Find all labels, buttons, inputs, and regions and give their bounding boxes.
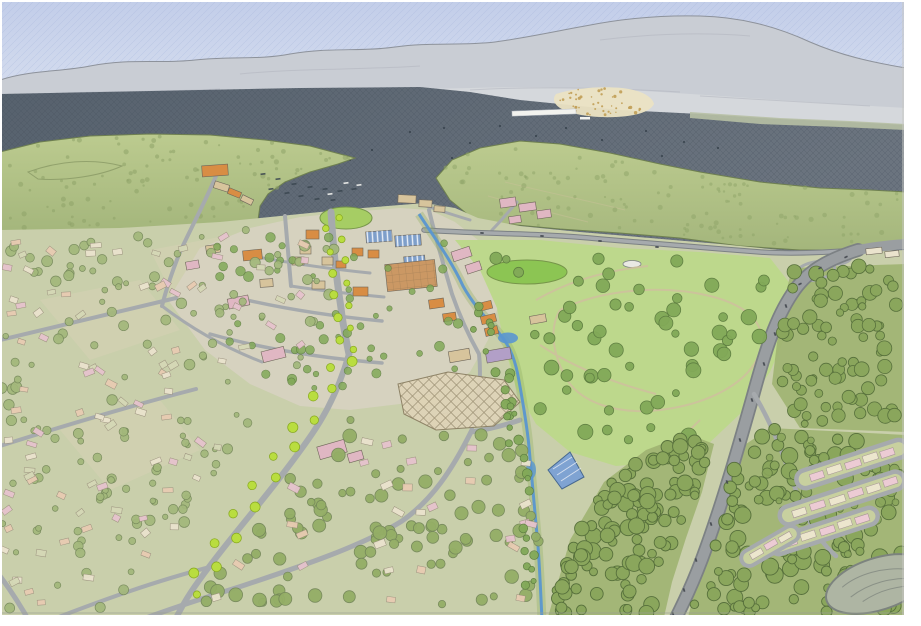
tree — [339, 489, 346, 496]
tree — [624, 436, 632, 444]
street-tree — [338, 236, 345, 243]
tree — [265, 266, 274, 275]
scrub-dot — [211, 206, 216, 211]
street-tree — [330, 291, 338, 299]
distant-building — [591, 96, 593, 98]
scrub-dot — [669, 185, 673, 189]
house — [164, 388, 173, 394]
house — [86, 250, 96, 256]
tree — [128, 569, 134, 575]
tree — [76, 548, 86, 558]
tree — [122, 485, 129, 492]
tree — [303, 365, 311, 373]
scrub-dot — [723, 183, 726, 186]
tree — [266, 233, 276, 243]
scrub-dot — [185, 176, 189, 180]
tree — [485, 453, 494, 462]
tree — [243, 554, 253, 564]
tree — [78, 438, 84, 444]
tree — [705, 278, 719, 292]
distant-building — [586, 112, 589, 115]
forest-tree — [832, 434, 842, 444]
tree — [279, 592, 292, 605]
tree — [411, 541, 422, 552]
distant-building — [601, 105, 603, 107]
building — [509, 215, 522, 224]
tree — [686, 363, 701, 378]
scrub-dot — [466, 152, 470, 156]
forest-tree — [628, 490, 640, 502]
scrub-dot — [747, 215, 752, 220]
forest-tree — [828, 337, 836, 345]
tree — [230, 246, 237, 253]
tree — [107, 395, 118, 406]
tree — [235, 321, 241, 327]
building — [537, 209, 552, 219]
tree — [64, 271, 74, 281]
forest-tree — [815, 549, 831, 565]
tree — [214, 243, 221, 250]
scrub-dot — [519, 171, 524, 176]
forest-tree — [821, 402, 831, 412]
distant-building — [600, 93, 602, 95]
tree — [460, 533, 471, 544]
scrub-dot — [281, 149, 286, 154]
scrub-dot — [140, 179, 145, 184]
tree — [6, 415, 16, 425]
scrub-dot — [595, 175, 600, 180]
sailboat-speck — [499, 125, 501, 127]
tree — [505, 374, 514, 383]
house — [111, 507, 122, 514]
forest-tree — [677, 475, 693, 491]
scrub-dot — [683, 227, 686, 230]
scrub-dot — [742, 182, 746, 186]
tree — [672, 330, 679, 337]
scrub-dot — [270, 155, 274, 159]
scrub-dot — [149, 220, 151, 222]
tree — [464, 458, 471, 465]
house — [112, 248, 122, 255]
scrub-dot — [41, 176, 45, 180]
scrub-dot — [129, 171, 133, 175]
scrub-dot — [319, 152, 322, 155]
tree — [283, 572, 292, 581]
distant-building — [615, 112, 616, 113]
forest-tree — [734, 507, 751, 524]
forest-tree — [827, 269, 839, 281]
forest-tree — [724, 481, 737, 494]
scrub-dot — [621, 161, 624, 164]
tree — [244, 272, 254, 282]
tree — [472, 500, 485, 513]
scrub-dot — [722, 237, 725, 240]
scrub-dot — [256, 148, 260, 152]
scrub-dot — [61, 203, 65, 207]
forest-tree — [806, 375, 817, 386]
scrub-dot — [857, 233, 860, 236]
tree — [434, 468, 441, 475]
tree — [191, 310, 197, 316]
scrub-dot — [841, 225, 845, 229]
scrub-dot — [142, 184, 144, 186]
scrub-dot — [566, 176, 570, 180]
scrub-dot — [172, 150, 176, 154]
tree — [168, 504, 178, 514]
scrub-dot — [879, 230, 884, 235]
building — [202, 164, 229, 177]
forest-tree — [754, 495, 763, 504]
tree — [78, 459, 84, 465]
forest-tree — [787, 265, 801, 279]
tree — [242, 227, 249, 234]
tree — [427, 519, 439, 531]
forest-tree — [762, 468, 772, 478]
scrub-dot — [729, 235, 732, 238]
building — [368, 250, 379, 258]
tree — [251, 549, 260, 558]
scrub-dot — [145, 177, 150, 182]
forest-tree — [654, 557, 664, 567]
scrub-dot — [525, 176, 527, 178]
tree — [741, 310, 756, 325]
forest-tree — [888, 408, 902, 422]
forest-tree — [565, 560, 579, 574]
scrub-dot — [699, 224, 704, 229]
forest-tree — [743, 597, 754, 608]
scrub-dot — [155, 154, 159, 158]
distant-building — [589, 114, 591, 116]
tree — [164, 258, 173, 267]
distant-building — [580, 95, 583, 98]
tree — [578, 424, 593, 439]
tree — [427, 560, 435, 568]
forest-tree — [789, 595, 798, 604]
building — [260, 279, 274, 288]
scrub-dot — [134, 189, 139, 194]
scrub-dot — [239, 162, 241, 164]
scrub-dot — [300, 168, 302, 170]
forest-tree — [892, 499, 899, 506]
tree — [427, 285, 434, 292]
tree — [298, 355, 304, 361]
tree — [373, 526, 387, 540]
building — [499, 197, 516, 208]
tree — [483, 349, 489, 355]
scrub-dot — [499, 212, 503, 216]
tree — [51, 434, 59, 442]
scrub-dot — [575, 168, 577, 170]
forest-tree — [629, 457, 643, 471]
tree — [134, 232, 143, 241]
scrub-dot — [843, 216, 846, 219]
distant-building — [600, 88, 602, 90]
scrub-dot — [213, 215, 216, 218]
tree — [572, 320, 582, 330]
forest-tree — [677, 516, 686, 525]
house — [386, 596, 395, 603]
building — [306, 230, 319, 239]
street-tree — [212, 562, 222, 572]
tree — [475, 429, 487, 441]
scrub-dot — [122, 163, 126, 167]
forest-tree — [844, 551, 851, 558]
street-tree — [269, 453, 277, 461]
forest-tree — [556, 602, 567, 613]
scrub-dot — [295, 168, 299, 172]
tree — [100, 299, 105, 304]
scrub-dot — [347, 156, 350, 159]
tree — [356, 558, 367, 569]
sailboat-speck — [371, 149, 373, 151]
tree — [211, 470, 217, 476]
forest-tree — [816, 277, 827, 288]
tree — [212, 460, 220, 468]
forest-tree — [555, 580, 569, 594]
forest-tree — [590, 568, 598, 576]
street-tree — [344, 280, 350, 286]
scrub-dot — [850, 240, 853, 243]
tree — [610, 299, 621, 310]
tree — [372, 569, 380, 577]
scrub-dot — [270, 141, 274, 145]
tree — [659, 316, 673, 330]
tree — [372, 369, 381, 378]
tree — [231, 314, 236, 319]
scrub-dot — [189, 202, 194, 207]
forest-tree — [737, 568, 751, 582]
sailboat-speck — [601, 139, 603, 141]
forest-tree — [726, 541, 738, 553]
scrub-dot — [124, 149, 129, 154]
tree — [346, 487, 355, 496]
tree — [435, 341, 445, 351]
forest-tree — [727, 496, 738, 507]
forest-tree — [755, 429, 770, 444]
scrub-dot — [610, 163, 615, 168]
forest-tree — [862, 382, 875, 395]
tree — [150, 272, 160, 282]
tree — [727, 330, 737, 340]
street-tree — [350, 346, 357, 353]
forest-tree — [792, 382, 800, 390]
car — [540, 235, 544, 237]
tree — [758, 275, 769, 286]
forest-tree — [600, 528, 615, 543]
distant-building — [575, 98, 577, 100]
scrub-dot — [879, 203, 883, 207]
tree — [482, 475, 492, 485]
tree — [74, 527, 82, 535]
street-tree — [327, 249, 333, 255]
tree — [184, 359, 195, 370]
house — [90, 243, 101, 248]
street-tree — [347, 356, 357, 366]
tree — [609, 343, 623, 357]
tree — [491, 368, 500, 377]
tree — [119, 427, 128, 436]
scrub-dot — [709, 183, 712, 186]
tree — [102, 287, 108, 293]
forest-tree — [876, 331, 885, 340]
tree — [385, 265, 392, 272]
sailboat-speck — [565, 127, 567, 129]
scrub-dot — [295, 172, 298, 175]
tree — [531, 578, 536, 583]
tree — [492, 504, 504, 516]
tree — [143, 340, 151, 348]
forest-tree — [859, 333, 868, 342]
tree — [216, 272, 224, 280]
scrub-dot — [553, 176, 557, 180]
scrub-dot — [29, 189, 32, 192]
scrub-dot — [46, 206, 48, 208]
forest-tree — [639, 558, 655, 574]
car — [480, 232, 484, 234]
scrub-dot — [66, 155, 70, 159]
tree — [339, 382, 347, 390]
street-tree — [336, 215, 342, 221]
tree — [13, 550, 18, 555]
building — [434, 206, 445, 213]
tree — [487, 328, 494, 335]
scrub-dot — [52, 209, 55, 212]
scrub-dot — [167, 206, 172, 211]
tree — [544, 333, 555, 344]
tree — [671, 255, 683, 267]
forest-tree — [748, 446, 760, 458]
tree — [313, 479, 322, 488]
scrub-dot — [452, 165, 457, 170]
tree — [752, 329, 767, 344]
forest-tree — [707, 588, 720, 601]
scrub-dot — [8, 164, 12, 168]
scrub-dot — [34, 170, 38, 174]
forest-tree — [656, 452, 669, 465]
scrub-dot — [145, 164, 148, 167]
tree — [67, 263, 74, 270]
scrub-dot — [822, 213, 827, 218]
scrub-dot — [578, 156, 582, 160]
street-tree — [346, 302, 352, 308]
street-tree — [288, 422, 298, 432]
tree — [667, 303, 681, 317]
left-margin — [0, 0, 2, 626]
tree — [409, 288, 415, 294]
tree — [366, 494, 375, 503]
distant-building — [577, 89, 579, 91]
scrub-dot — [193, 167, 198, 172]
forest-tree — [803, 310, 817, 324]
forest-tree — [855, 407, 866, 418]
tree — [505, 440, 512, 447]
forest-tree — [852, 259, 867, 274]
tree — [475, 302, 484, 311]
forest-tree — [783, 363, 792, 372]
scrub-dot — [650, 219, 654, 223]
scrub-dot — [738, 193, 741, 196]
tree — [350, 254, 357, 261]
tree — [314, 278, 320, 284]
forest-tree — [801, 420, 808, 427]
forest-tree — [854, 362, 869, 377]
scrub-dot — [603, 179, 607, 183]
tree — [490, 593, 497, 600]
scrub-dot — [115, 136, 119, 140]
distant-building — [568, 93, 570, 95]
tree — [306, 346, 315, 355]
tree — [501, 386, 509, 394]
tree — [436, 559, 445, 568]
tree — [313, 519, 326, 532]
scrub-dot — [772, 241, 777, 246]
street-tree — [232, 533, 242, 543]
forest-tree — [637, 574, 647, 584]
tree — [42, 256, 53, 267]
scrub-dot — [793, 215, 796, 218]
forest-tree — [859, 303, 866, 310]
tree — [585, 373, 594, 382]
scrub-dot — [708, 226, 713, 231]
tree — [531, 532, 540, 541]
building — [353, 287, 368, 296]
sailboat-speck — [409, 131, 411, 133]
tree — [346, 295, 354, 303]
scrub-dot — [72, 138, 75, 141]
tree — [288, 293, 295, 300]
house — [161, 414, 171, 420]
tree — [239, 298, 246, 305]
tree — [108, 477, 115, 484]
scrub-dot — [532, 171, 535, 174]
scrub-dot — [9, 217, 12, 220]
forest-tree — [668, 507, 679, 518]
forest-tree — [828, 286, 842, 300]
tree — [316, 500, 326, 510]
tree — [303, 275, 313, 285]
scrub-dot — [509, 190, 513, 194]
forest-tree — [808, 437, 815, 444]
scrub-dot — [623, 203, 626, 206]
tree — [14, 376, 21, 383]
forest-tree — [647, 512, 657, 522]
tree — [199, 234, 204, 239]
tree — [534, 403, 546, 415]
scrub-dot — [604, 196, 606, 198]
building — [366, 230, 393, 243]
scrub-dot — [324, 158, 328, 162]
tree — [222, 444, 232, 454]
tree — [219, 262, 228, 271]
tree — [124, 281, 129, 286]
scrub-dot — [224, 201, 229, 206]
tree — [514, 267, 524, 277]
tree — [561, 370, 573, 382]
tree — [116, 535, 122, 541]
building — [866, 247, 883, 255]
tree — [651, 395, 665, 409]
tree — [163, 514, 168, 519]
tree — [312, 385, 317, 390]
scrub-dot — [739, 234, 743, 238]
tree — [90, 268, 96, 274]
scrub-dot — [657, 191, 660, 194]
distant-building — [559, 100, 561, 102]
scrub-dot — [467, 166, 471, 170]
tree — [365, 547, 376, 558]
sailboat-speck — [443, 127, 445, 129]
scrub-dot — [658, 205, 663, 210]
